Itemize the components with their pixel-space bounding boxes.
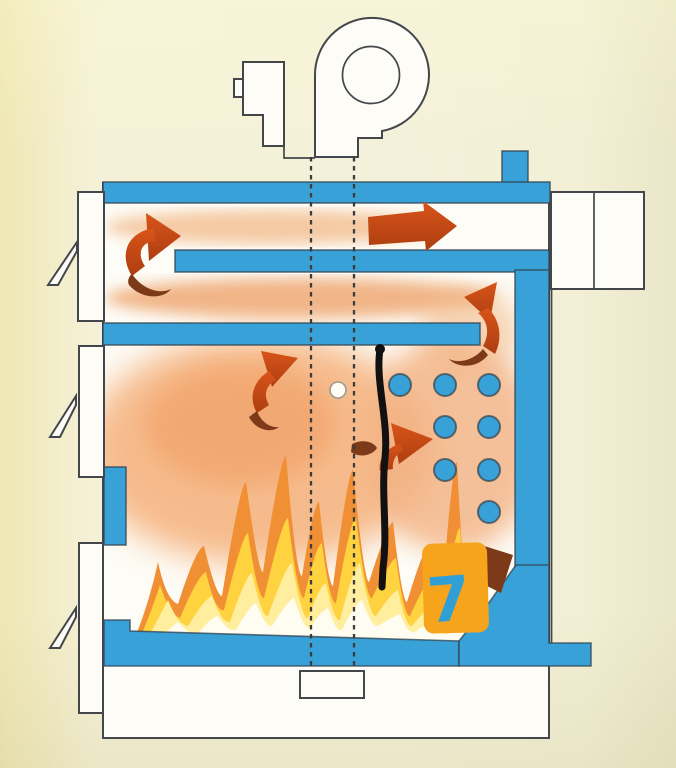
annotation-line-start-dot	[375, 344, 385, 354]
burner-port	[300, 671, 364, 698]
diagram-canvas: 7	[0, 0, 676, 768]
fan-motor-nub	[234, 79, 243, 97]
annotation-highlight: 7	[422, 542, 489, 638]
left-wall-segment	[104, 467, 126, 545]
flue-outlet-frame	[551, 192, 644, 289]
tube-hole	[434, 374, 456, 396]
tube-hole	[478, 459, 500, 481]
tube-hole	[389, 374, 411, 396]
tube-hole	[434, 416, 456, 438]
middle-baffle	[175, 250, 549, 272]
fan-housing	[315, 18, 429, 157]
flue-outlet-box	[551, 192, 644, 289]
chimney-stub	[502, 151, 528, 185]
tube-hole	[478, 501, 500, 523]
doors	[48, 192, 104, 713]
flue-fan	[234, 18, 429, 158]
fan-base-line	[284, 146, 315, 158]
upper-cleaning-door	[78, 192, 104, 321]
tube-hole	[434, 459, 456, 481]
fuel-door-handle	[50, 396, 76, 437]
tube-hole	[478, 374, 500, 396]
top-plate	[103, 182, 550, 203]
glow-chamber-core	[145, 365, 335, 485]
ash-door-handle	[50, 608, 76, 648]
lower-baffle	[103, 323, 480, 345]
fuel-loading-door	[79, 346, 104, 477]
ash-door	[79, 543, 103, 713]
upper-door-handle	[48, 242, 77, 285]
annotation-digit: 7	[424, 561, 473, 637]
boiler-diagram: 7	[0, 0, 676, 768]
fan-motor-block	[243, 62, 284, 146]
right-wall	[515, 270, 549, 568]
secondary-air-hole	[330, 382, 346, 398]
tube-hole	[478, 416, 500, 438]
